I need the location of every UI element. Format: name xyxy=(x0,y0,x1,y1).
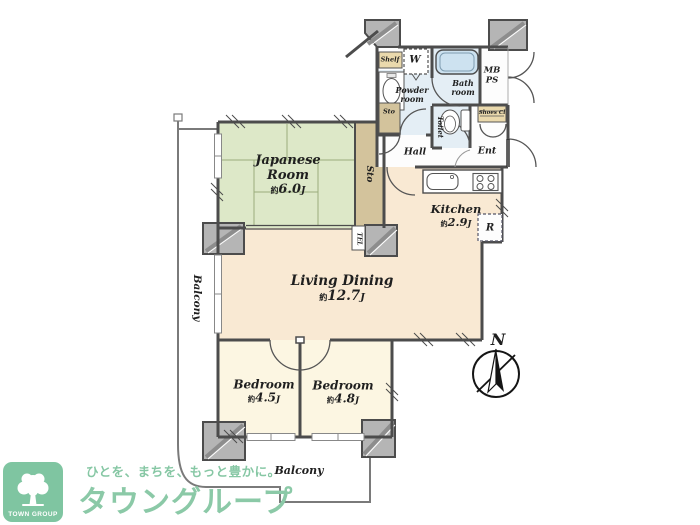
refrigerator-label: R xyxy=(486,222,494,233)
room-area: 約12.7J xyxy=(291,289,394,304)
storage-closet-label: Sto xyxy=(364,166,374,183)
room-area: 約2.9J xyxy=(431,216,482,229)
room-name: Bedroom xyxy=(312,379,373,392)
entrance-label: Ent xyxy=(478,147,497,158)
logo-text: TOWN GROUP xyxy=(3,511,63,518)
bedroom-1-label: Bedroom 約4.5J xyxy=(233,378,294,405)
room-area: 約4.8J xyxy=(312,393,373,407)
floorplan-canvas xyxy=(0,0,700,525)
living-dining-label: Living Dining 約12.7J xyxy=(291,274,394,304)
shoes-closet-label: Shoes Cl xyxy=(479,110,506,116)
brand-name: タウングループ xyxy=(78,477,293,521)
room-name: Bedroom xyxy=(233,378,294,391)
room-name: Living Dining xyxy=(291,274,394,289)
stove xyxy=(473,174,498,191)
meter-box-door xyxy=(508,77,534,103)
kitchen-label: Kitchen 約2.9J xyxy=(431,203,482,229)
hall-label: Hall xyxy=(404,148,426,159)
compass-icon xyxy=(473,349,519,397)
bathroom-label: Bathroom xyxy=(451,79,474,97)
shelf-label: Shelf xyxy=(381,56,400,63)
japanese-room-label: Japanese Room 約6.0J xyxy=(248,154,328,198)
bedroom-2-label: Bedroom 約4.8J xyxy=(312,379,373,406)
room-area: 約6.0J xyxy=(248,183,328,198)
tel-label: TEL xyxy=(355,232,362,245)
washer-label: W xyxy=(409,54,420,65)
tree-icon xyxy=(3,465,63,509)
floorplan-page: Japanese Room 約6.0J Living Dining 約12.7J… xyxy=(0,0,700,525)
room-name: Japanese Room xyxy=(248,154,328,183)
balcony-left-label: Balcony xyxy=(190,275,202,322)
balcony-bottom-label: Balcony xyxy=(274,465,323,477)
storage-small-label: Sto xyxy=(383,108,395,115)
north-label: N xyxy=(491,331,506,349)
toilet-tank xyxy=(461,110,470,131)
room-area: 約4.5J xyxy=(233,392,294,406)
meter-box-label: MBPS xyxy=(484,66,501,85)
meter-box-door xyxy=(508,52,534,78)
town-group-logo: TOWN GROUP xyxy=(3,462,63,522)
door-post xyxy=(296,337,304,343)
toilet-label: Toilet xyxy=(436,116,444,138)
entrance-door xyxy=(508,139,536,167)
powder-room-label: Powderroom xyxy=(396,86,429,104)
